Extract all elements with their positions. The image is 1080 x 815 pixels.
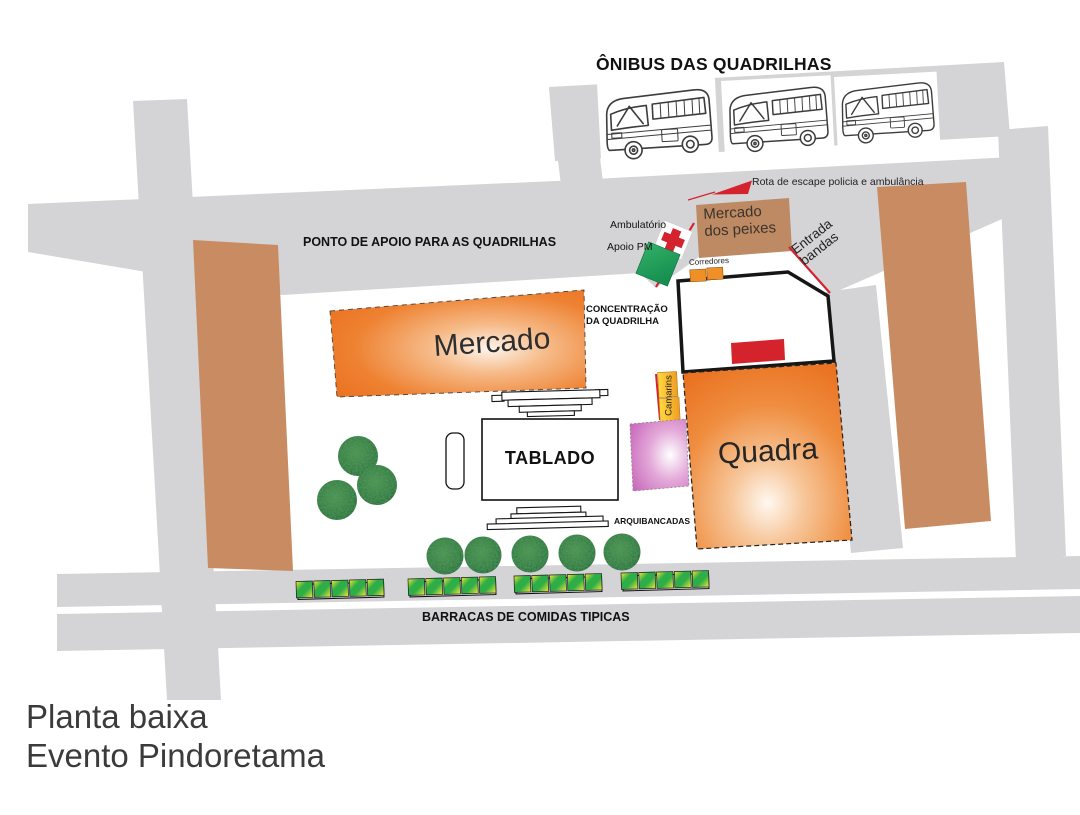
tree-cluster — [317, 436, 397, 520]
bleachers-label: ARQUIBANCADAS — [614, 516, 690, 526]
page-title: Planta baixa Evento Pindoretama — [26, 697, 446, 775]
stall-icon — [461, 577, 478, 594]
food-stalls-label: BARRACAS DE COMIDAS TIPICAS — [422, 610, 630, 624]
road-right-vertical — [998, 126, 1066, 561]
stall-icon — [639, 572, 656, 589]
page-title-line2: Evento Pindoretama — [26, 736, 446, 775]
stall-icon — [479, 577, 496, 594]
escape-route-label: Rota de escape policia e ambulância — [752, 176, 924, 188]
tree-icon — [512, 536, 549, 573]
dressing-rooms-label: Camarins — [664, 373, 675, 419]
bus-area-title: ÔNIBUS DAS QUADRILHAS — [596, 54, 832, 75]
stall-icon — [567, 574, 584, 591]
stall-icon — [692, 571, 709, 588]
stall-icon — [514, 576, 531, 593]
bus-parking — [597, 72, 940, 167]
pink-tent — [630, 419, 689, 491]
stall-icon — [674, 571, 691, 588]
bus-icon — [834, 72, 940, 150]
lower-bleachers — [487, 505, 609, 529]
stall-icon — [657, 572, 674, 589]
stall-icon — [332, 580, 349, 597]
police-support-label: Apoio PM — [607, 241, 653, 253]
tree-icon — [604, 534, 641, 571]
ambulatory-label: Ambulatório — [610, 219, 666, 231]
support-point-label: PONTO DE APOIO PARA AS QUADRILHAS — [303, 235, 556, 249]
upper-bleachers — [492, 389, 609, 417]
stall-icon — [444, 578, 461, 595]
tree-icon — [465, 537, 502, 574]
building-left — [193, 240, 293, 571]
bus-icon — [597, 77, 719, 167]
page-title-line1: Planta baixa — [26, 697, 446, 736]
map-canvas — [0, 0, 1080, 815]
fish-market-label: Mercado dos peixes — [703, 202, 776, 240]
concentration-label: CONCENTRAÇÃO DA QUADRILHA — [586, 304, 668, 328]
tree-icon — [559, 535, 596, 572]
stall-icon — [314, 581, 331, 598]
tree-icon — [427, 538, 464, 575]
stall-icon — [367, 579, 384, 596]
stall-icon — [296, 581, 313, 598]
stall-icon — [585, 574, 602, 591]
stage-side-booth — [446, 433, 464, 489]
stall-icon — [550, 575, 567, 592]
tree-icon — [317, 480, 357, 520]
event-floor-plan: ÔNIBUS DAS QUADRILHAS Rota de escape pol… — [0, 0, 1080, 815]
stall-icon — [621, 573, 638, 590]
stage-label: TABLADO — [482, 448, 618, 469]
stall-icon — [408, 579, 425, 596]
stall-icon — [426, 578, 443, 595]
bus-icon — [721, 75, 835, 159]
stall-icon — [532, 575, 549, 592]
tree-icon — [357, 465, 397, 505]
stall-icon — [349, 580, 366, 597]
red-stage-block — [731, 339, 785, 364]
